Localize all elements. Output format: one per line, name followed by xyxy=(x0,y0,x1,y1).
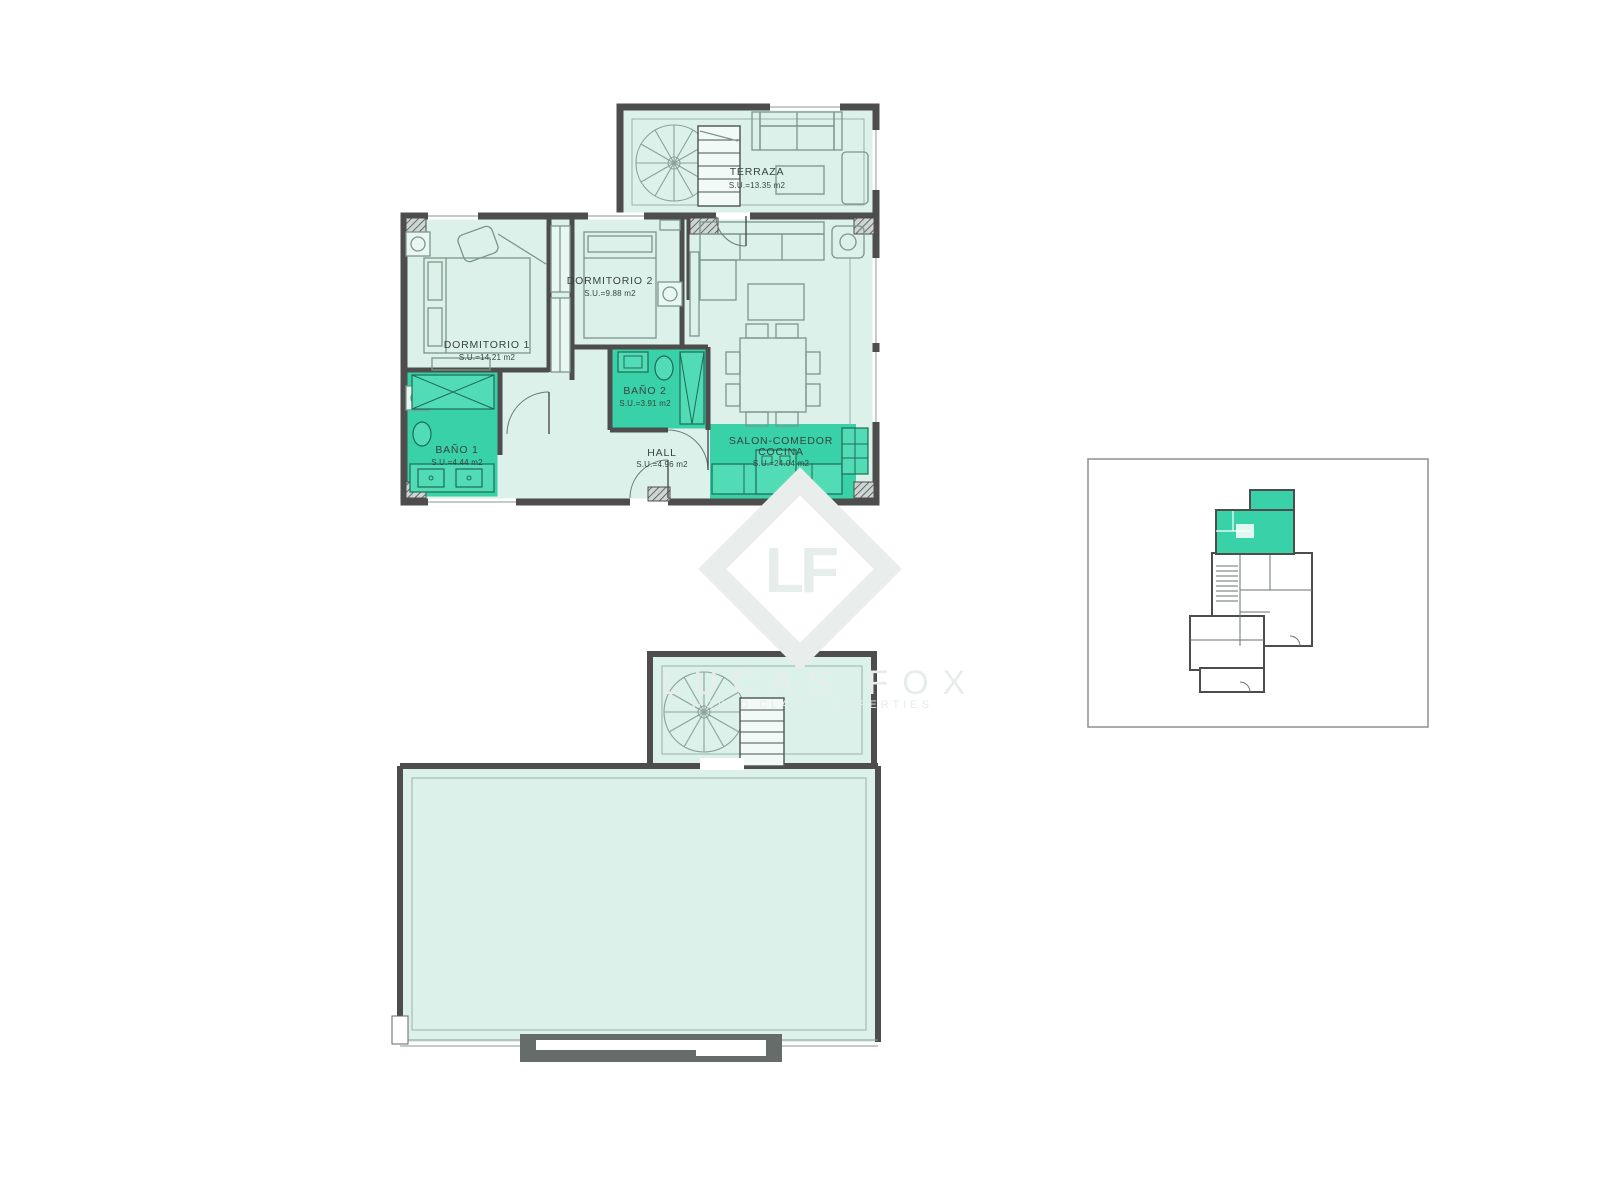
room-area-salon: S.U.=24.04 m2 xyxy=(753,459,810,468)
watermark-tagline: WORLD CLASS PROPERTIES xyxy=(691,699,933,711)
room-label-bano2: BAÑO 2 xyxy=(623,384,666,397)
room-area-bano1: S.U.=4.44 m2 xyxy=(431,458,483,467)
terrace-planter xyxy=(520,1034,782,1062)
room-area-dormitorio2: S.U.=9.88 m2 xyxy=(584,289,636,298)
watermark-logo-letters: LF xyxy=(765,534,837,606)
apartment-body: DORMITORIO 1 S.U.=14.21 m2 DORMITORIO 2 … xyxy=(404,213,880,506)
wardrobes xyxy=(551,226,570,372)
room-label-hall: HALL xyxy=(647,447,676,459)
room-label-dormitorio1: DORMITORIO 1 xyxy=(444,339,530,351)
key-plan xyxy=(1088,459,1428,727)
room-label-salon-line2: COCINA xyxy=(758,446,804,458)
terraza-section: TERRAZA S.U.=13.35 m2 xyxy=(620,104,880,218)
room-area-hall: S.U.=4.96 m2 xyxy=(636,460,688,469)
room-area-bano2: S.U.=3.91 m2 xyxy=(619,399,671,408)
floorplan-image: TERRAZA S.U.=13.35 m2 xyxy=(0,0,1600,1200)
main-floor-plan: TERRAZA S.U.=13.35 m2 xyxy=(404,104,880,506)
floorplan-page: TERRAZA S.U.=13.35 m2 xyxy=(0,0,1600,1200)
room-area-terraza: S.U.=13.35 m2 xyxy=(729,181,786,190)
room-label-bano1: BAÑO 1 xyxy=(435,443,478,456)
room-label-dormitorio2: DORMITORIO 2 xyxy=(567,275,653,287)
room-label-terraza: TERRAZA xyxy=(730,166,785,178)
watermark-brand: LUCAS FOX xyxy=(661,664,980,702)
roof-terrace-plan xyxy=(392,654,878,1062)
terrace-step xyxy=(392,1016,408,1044)
room-area-dormitorio1: S.U.=14.21 m2 xyxy=(459,353,516,362)
